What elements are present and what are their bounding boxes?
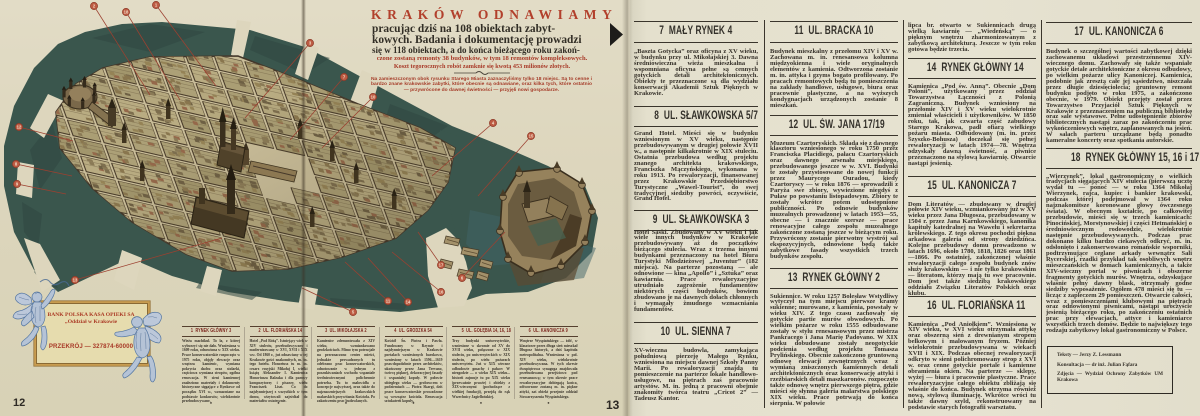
svg-text:15: 15 bbox=[529, 134, 534, 139]
svg-text:18: 18 bbox=[124, 10, 129, 15]
svg-text:13: 13 bbox=[73, 278, 78, 283]
svg-text:12: 12 bbox=[17, 125, 22, 130]
svg-text:14: 14 bbox=[406, 300, 411, 305]
svg-text:11: 11 bbox=[386, 299, 391, 304]
svg-text:10: 10 bbox=[371, 95, 376, 100]
svg-text:17: 17 bbox=[439, 263, 444, 268]
svg-text:16: 16 bbox=[439, 290, 444, 295]
